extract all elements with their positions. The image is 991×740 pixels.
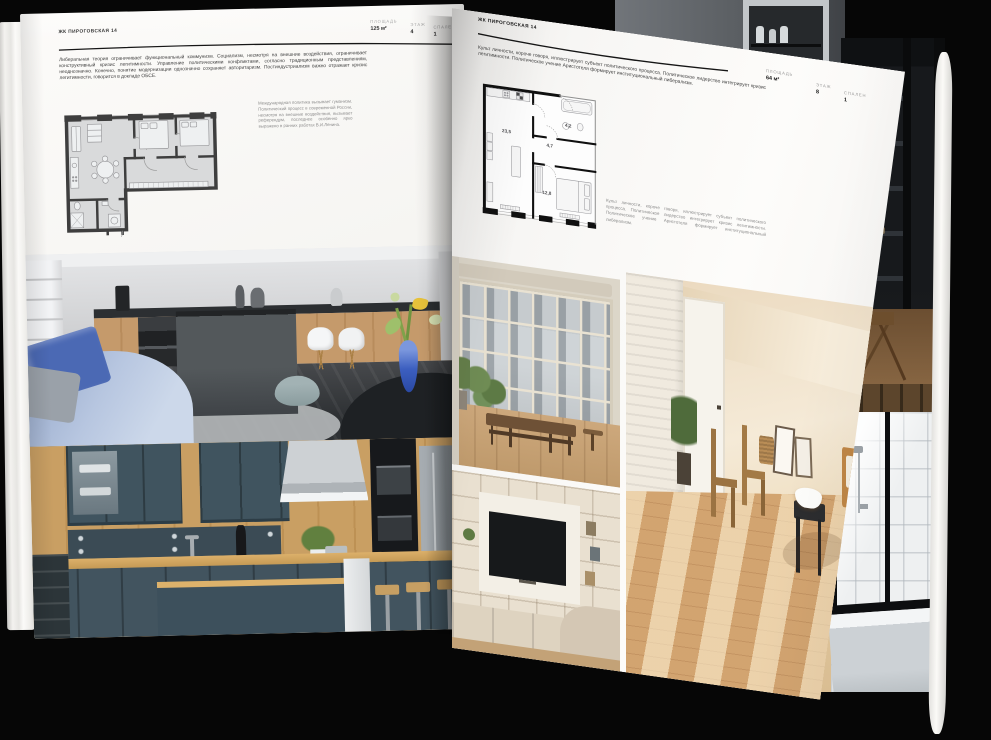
bench-leg xyxy=(509,428,512,447)
bar-stool xyxy=(375,584,400,594)
leaning-frame xyxy=(772,425,794,476)
faucet-arm xyxy=(185,535,199,539)
side-table-leg xyxy=(591,434,594,451)
tv-screen xyxy=(489,511,566,586)
stat-area: ПЛОЩАДЬ 64 м² xyxy=(766,68,793,85)
magazine-mockup: ЖК ПИРОГОВСКАЯ 14 ПЛОЩАДЬ 125 м² ЭТАЖ 4 … xyxy=(0,0,991,740)
range-hood xyxy=(278,439,368,502)
stat-value: 125 м² xyxy=(370,25,397,32)
room-area-label: 4,2 xyxy=(565,123,572,129)
stat-value: 1 xyxy=(844,97,866,106)
ceiling-strip xyxy=(25,245,469,269)
book-spine xyxy=(586,521,596,537)
bottle-shape xyxy=(236,525,247,558)
stat-value: 64 м² xyxy=(766,75,793,85)
intro-paragraph: Либеральная теория ограничивает функцион… xyxy=(59,51,367,82)
page-title: ЖК ПИРОГОВСКАЯ 14 xyxy=(58,29,117,35)
chair xyxy=(338,327,365,351)
photo-kitchen-teal xyxy=(30,437,478,639)
stat-area: ПЛОЩАДЬ 125 м² xyxy=(370,18,397,32)
shower-handle xyxy=(860,504,868,509)
wall-edge xyxy=(452,256,459,465)
chair-legs xyxy=(314,350,328,369)
page-title: ЖК ПИРОГОВСКАЯ 14 xyxy=(478,18,537,31)
stat-value: 8 xyxy=(816,89,831,97)
side-note: Культ личности, короче говоря, иллюстрир… xyxy=(606,198,766,245)
stat-bedrooms: СПАЛЕН 1 xyxy=(844,90,866,106)
back-shelf-line xyxy=(751,44,821,47)
loft-chair-seat xyxy=(869,312,894,324)
left-page: ЖК ПИРОГОВСКАЯ 14 ПЛОЩАДЬ 125 м² ЭТАЖ 4 … xyxy=(20,4,478,639)
plant-pot xyxy=(677,452,691,486)
bottle-shape xyxy=(756,26,764,43)
wood-chair-leg xyxy=(731,487,735,528)
glass-trim xyxy=(885,412,890,628)
loft-post xyxy=(903,38,910,316)
photo-kitchen-grey xyxy=(25,245,473,447)
flower-bud xyxy=(390,293,399,302)
stool-leg xyxy=(385,594,390,631)
bench-leg xyxy=(568,437,571,456)
stat-value: 4 xyxy=(410,29,425,35)
dog-statue xyxy=(235,285,245,308)
wood-chair-leg xyxy=(761,479,765,516)
kitchen-island xyxy=(157,578,354,636)
stat-label: ЭТАЖ xyxy=(410,22,425,27)
faucet xyxy=(190,537,195,558)
pillow-grey xyxy=(25,366,80,424)
spine-shadow xyxy=(426,15,454,634)
upper-cabinet xyxy=(198,441,289,523)
pouf xyxy=(275,375,320,407)
white-pillar xyxy=(343,558,371,632)
oven-face xyxy=(377,465,411,495)
dishes xyxy=(80,487,111,495)
oven-face xyxy=(378,515,412,541)
stool-leg xyxy=(416,592,421,630)
chair xyxy=(307,327,334,351)
bench-leg xyxy=(549,434,552,453)
bottle-shape xyxy=(769,29,776,43)
photo-tv-room xyxy=(452,470,620,672)
book-spine xyxy=(590,546,600,562)
cabinet-glass xyxy=(72,451,118,515)
book-spine xyxy=(585,571,595,587)
leaning-frame xyxy=(794,436,812,478)
bathtub xyxy=(828,606,946,692)
photo-window-room xyxy=(452,256,620,488)
floor-plan-one-bedroom: 23,5 4,7 4,2 12,8 xyxy=(476,77,602,233)
stat-label: ПЛОЩАДЬ xyxy=(370,18,397,24)
wood-chair-back xyxy=(711,428,716,517)
side-note: Международная политика вызывает гуманизм… xyxy=(258,98,353,129)
dishes xyxy=(79,464,110,472)
open-shelf-dark xyxy=(32,554,69,639)
wood-chair-back xyxy=(742,425,747,506)
plant-icon xyxy=(462,525,475,545)
bottle-shape xyxy=(780,26,788,43)
dog-statue xyxy=(250,288,264,307)
door-handle xyxy=(717,405,721,410)
stat-floor: ЭТАЖ 4 xyxy=(410,22,426,35)
coffee-machine xyxy=(115,285,130,310)
stat-label: ЭТАЖ xyxy=(816,82,831,89)
basket xyxy=(759,435,773,465)
bench-leg xyxy=(491,426,494,445)
chair-legs xyxy=(345,349,359,368)
floor-plan-two-bedroom xyxy=(58,106,225,238)
stat-floor: ЭТАЖ 8 xyxy=(816,82,831,97)
room-area-label: 4,7 xyxy=(547,143,554,149)
kettle xyxy=(330,288,342,306)
